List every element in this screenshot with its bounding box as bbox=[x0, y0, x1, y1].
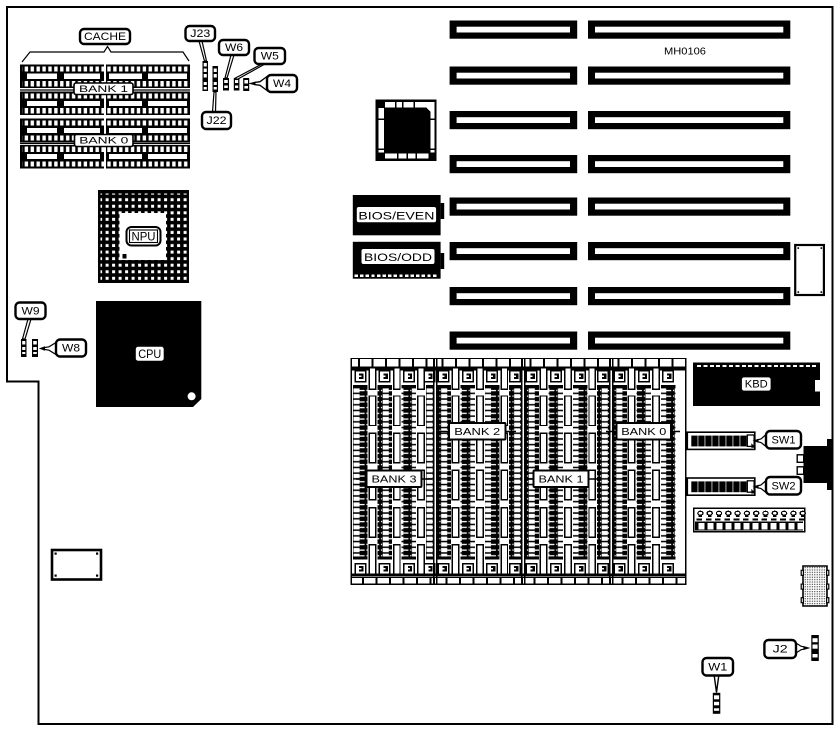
svg-text:BIOS/EVEN: BIOS/EVEN bbox=[358, 210, 434, 222]
svg-text:BANK 0: BANK 0 bbox=[79, 136, 128, 147]
svg-text:BANK 2: BANK 2 bbox=[454, 426, 500, 438]
svg-text:W4: W4 bbox=[273, 78, 291, 90]
svg-text:NPU: NPU bbox=[132, 231, 156, 243]
svg-text:BANK 1: BANK 1 bbox=[79, 84, 128, 95]
svg-text:W1: W1 bbox=[708, 662, 727, 674]
svg-text:J23: J23 bbox=[190, 28, 210, 40]
svg-text:SW1: SW1 bbox=[772, 435, 796, 447]
svg-text:J2: J2 bbox=[773, 644, 788, 656]
svg-text:W6: W6 bbox=[225, 42, 243, 54]
svg-text:CPU: CPU bbox=[138, 347, 161, 361]
svg-text:W8: W8 bbox=[62, 343, 80, 355]
svg-text:J22: J22 bbox=[207, 115, 227, 127]
svg-text:BIOS/ODD: BIOS/ODD bbox=[364, 252, 432, 264]
svg-text:BANK 0: BANK 0 bbox=[621, 426, 666, 438]
svg-text:CACHE: CACHE bbox=[84, 31, 126, 43]
svg-text:BANK 3: BANK 3 bbox=[372, 473, 417, 485]
svg-text:BANK 1: BANK 1 bbox=[539, 473, 584, 485]
svg-text:SW2: SW2 bbox=[772, 481, 796, 493]
svg-text:W9: W9 bbox=[22, 306, 40, 318]
svg-text:MH0106: MH0106 bbox=[664, 46, 706, 58]
svg-text:W5: W5 bbox=[261, 51, 279, 63]
svg-text:KBD: KBD bbox=[745, 379, 768, 391]
